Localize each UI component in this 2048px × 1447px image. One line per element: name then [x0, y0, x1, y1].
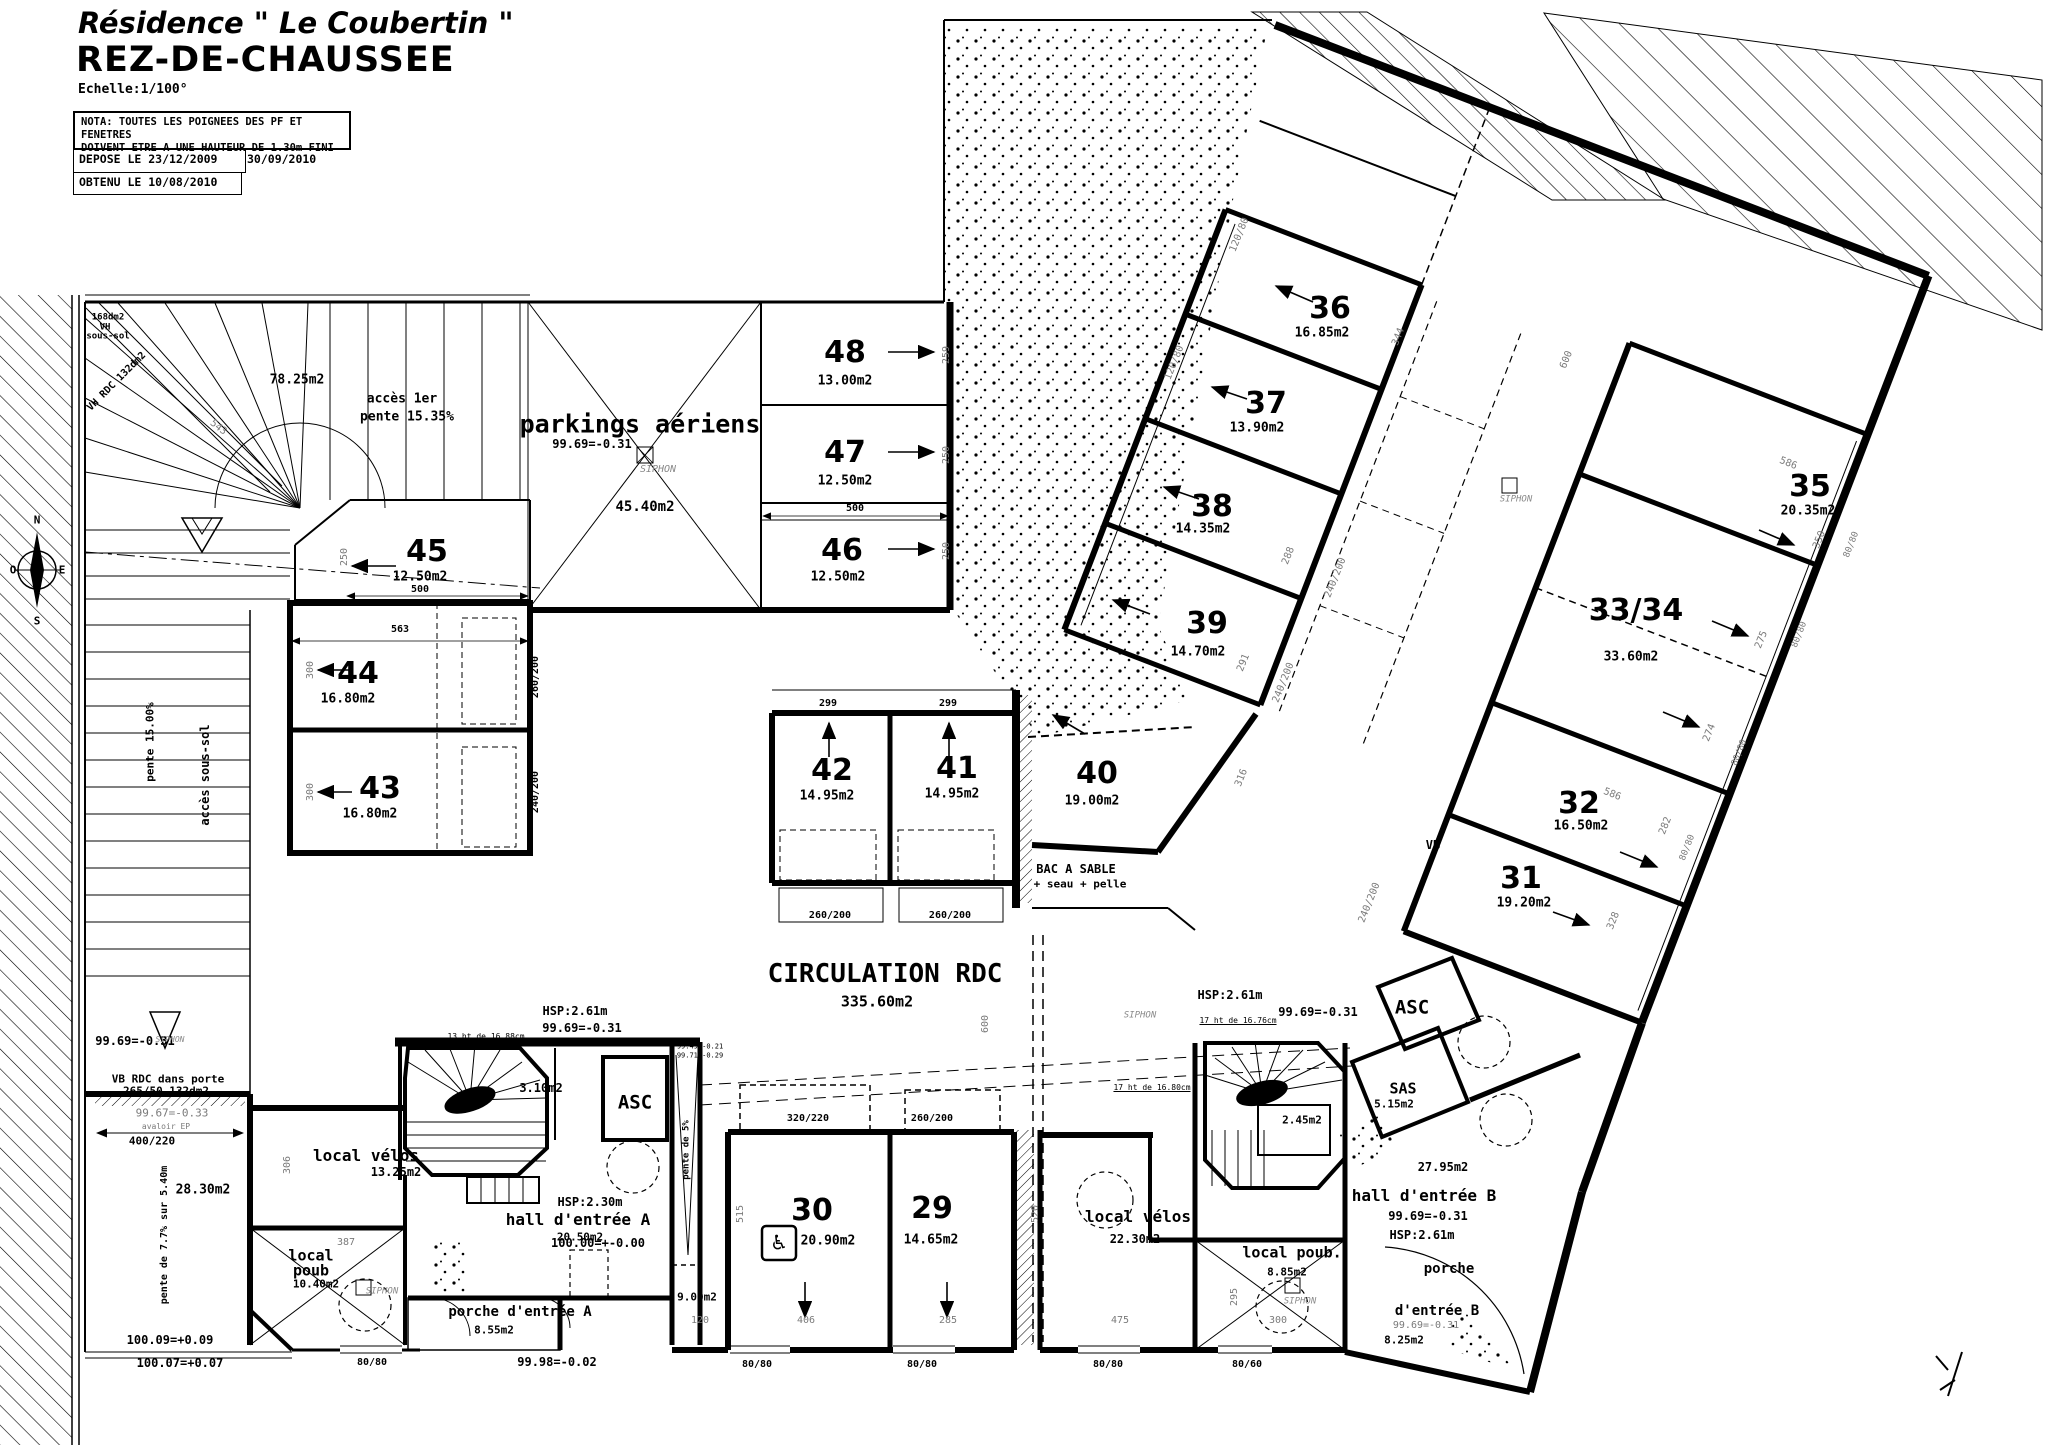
label-porche-a: porche d'entrée A: [448, 1305, 591, 1319]
label-hall-a: hall d'entrée A: [506, 1212, 651, 1228]
compass-east: E: [59, 564, 66, 577]
annotation: 300: [306, 783, 316, 801]
annotation: 240/200: [531, 771, 541, 813]
stipple-patch-a: [430, 1238, 466, 1300]
compass-west: O: [10, 564, 17, 577]
tree-icon: [1936, 1352, 1962, 1396]
room-area-44: 16.80m2: [321, 693, 376, 706]
annotation: 320/220: [787, 1114, 829, 1124]
room-area-40: 19.00m2: [1065, 795, 1120, 808]
obtenu-date-box: OBTENU LE 10/08/2010: [73, 172, 242, 195]
annotation: 295: [1230, 1288, 1240, 1306]
second-date: 30/09/2010: [247, 152, 316, 166]
room-number-38: 38: [1191, 492, 1233, 522]
annotation: SIPHON: [640, 465, 676, 475]
annotation: pente de 7.7% sur 5.40m: [160, 1166, 170, 1304]
annotation: 250: [340, 548, 350, 566]
annotation: accès 1er: [367, 393, 437, 406]
room-number-36: 36: [1309, 294, 1351, 324]
room-area-43: 16.80m2: [343, 808, 398, 821]
room-area-41: 14.95m2: [925, 788, 980, 801]
annotation: 80/80: [742, 1360, 772, 1370]
annotation: 45.40m2: [615, 500, 674, 514]
annotation: 120: [691, 1316, 709, 1326]
annotation: 99.69=-0.31: [1393, 1321, 1459, 1331]
annotation: 285: [939, 1316, 957, 1326]
room-number-31: 31: [1500, 864, 1542, 894]
annotation: 17 ht de 16.76cm: [1199, 1017, 1276, 1025]
annotation: 168dm2: [92, 314, 125, 323]
annotation: 27.95m2: [1418, 1161, 1469, 1173]
annotation: 400/220: [129, 1136, 175, 1147]
annotation: SAS: [1389, 1082, 1416, 1097]
annotation: 13.25m2: [371, 1166, 422, 1178]
annotation: HSP:2.61m: [1197, 989, 1262, 1001]
room-number-39: 39: [1186, 609, 1228, 639]
annotation: 8.85m2: [1267, 1267, 1307, 1278]
room-area-42: 14.95m2: [800, 790, 855, 803]
annotation: 10.40m2: [293, 1279, 339, 1290]
annotation: 600: [981, 1015, 991, 1033]
label-hall-b: hall d'entrée B: [1352, 1188, 1497, 1204]
nota-line1: NOTA: TOUTES LES POIGNEES DES PF ET FENE…: [81, 116, 349, 142]
room-number-37: 37: [1245, 389, 1287, 419]
wheelchair-icon: ♿: [772, 1232, 786, 1255]
scale-label: Echelle:1/100°: [78, 82, 188, 97]
annotation: HSP:2.61m: [542, 1005, 607, 1017]
room-number-47: 47: [824, 438, 866, 468]
annotation: 8.25m2: [1384, 1335, 1424, 1346]
annotation: SIPHON: [156, 1036, 185, 1044]
annotation: 387: [337, 1238, 355, 1248]
annotation: 8.55m2: [474, 1325, 514, 1336]
page-title: Résidence " Le Coubertin ": [78, 6, 513, 40]
room-area-30: 20.90m2: [801, 1235, 856, 1248]
label-asc-b: ASC: [1395, 999, 1429, 1018]
annotation: 78.25m2: [270, 374, 325, 387]
annotation: 80/60: [1232, 1360, 1262, 1370]
annotation: 260/200: [809, 911, 851, 921]
annotation: 300: [1269, 1316, 1287, 1326]
annotation: avaloir EP: [142, 1123, 190, 1131]
room-number-29: 29: [911, 1194, 953, 1224]
annotation: 99.49=-0.21: [677, 1044, 723, 1051]
annotation: 299: [819, 699, 837, 709]
annotation: 100.00=+-0.00: [551, 1237, 645, 1249]
room-area-38: 14.35m2: [1176, 523, 1231, 536]
annotation: 99.69=-0.31: [552, 438, 631, 450]
room-area-37: 13.90m2: [1230, 422, 1285, 435]
annotation: 299: [939, 699, 957, 709]
annotation: 2.45m2: [1282, 1115, 1322, 1126]
annotation: 28.30m2: [176, 1184, 231, 1197]
annotation: 80/80: [357, 1358, 387, 1368]
annotation: d'entrée B: [1395, 1304, 1479, 1318]
annotation: VB RDC dans porte: [112, 1074, 225, 1085]
annotation: 250: [942, 446, 952, 464]
annotation: BAC A SABLE: [1036, 863, 1115, 875]
annotation: pente 15.00%: [145, 702, 156, 781]
depose-date-box: DEPOSE LE 23/12/2009: [73, 149, 246, 173]
annotation: 259: [942, 346, 952, 364]
annotation: 260/200: [929, 911, 971, 921]
annotation: HSP:2.61m: [1389, 1229, 1454, 1241]
room-number-42: 42: [811, 756, 853, 786]
annotation: 250: [942, 542, 952, 560]
room-area-29: 14.65m2: [904, 1234, 959, 1247]
annotation: 306: [283, 1156, 293, 1174]
compass-north: N: [34, 514, 41, 527]
annotation: 563: [391, 625, 409, 635]
annotation: 22.30m2: [1110, 1233, 1161, 1245]
compass-south: S: [34, 615, 41, 628]
annotation: 9.00m2: [677, 1292, 717, 1303]
room-number-40: 40: [1076, 759, 1118, 789]
annotation: 99.69=-0.31: [1388, 1210, 1467, 1222]
room-area-32: 16.50m2: [1554, 820, 1609, 833]
annotation: accès sous-sol: [199, 724, 211, 825]
label-local-poub-b: local poub.: [1242, 1246, 1341, 1261]
annotation: + seau + pelle: [1034, 879, 1127, 890]
annotation: 99.69=-0.31: [1278, 1006, 1357, 1018]
room-number-35: 35: [1789, 472, 1831, 502]
room-area-46: 12.50m2: [811, 571, 866, 584]
room-area-45: 12.50m2: [393, 571, 448, 584]
annotation: poub: [293, 1264, 329, 1279]
annotation: VB: [1426, 839, 1440, 851]
room-number-30: 30: [791, 1196, 833, 1226]
floor-subtitle: REZ-DE-CHAUSSEE: [76, 40, 455, 80]
annotation: 260/200: [531, 656, 541, 698]
room-number-48: 48: [824, 338, 866, 368]
annotation: 99.67=-0.33: [136, 1108, 209, 1119]
annotation: 100.09=+0.09: [127, 1334, 214, 1346]
annotation: 5.15m2: [1374, 1099, 1414, 1110]
room-area-35: 20.35m2: [1781, 505, 1836, 518]
plan-linework: [0, 0, 2048, 1447]
annotation: 515: [736, 1205, 746, 1223]
label-porche-b: porche: [1424, 1262, 1475, 1276]
room-area-47: 12.50m2: [818, 475, 873, 488]
annotation: 265/50 132dm2: [123, 1086, 209, 1097]
annotation: 100.07=+0.07: [137, 1357, 224, 1369]
annotation: 17 ht de 16.80cm: [1113, 1084, 1190, 1092]
annotation: 260/200: [911, 1114, 953, 1124]
room-number-33/34: 33/34: [1589, 596, 1683, 626]
nota-box: NOTA: TOUTES LES POIGNEES DES PF ET FENE…: [73, 111, 351, 150]
room-number-45: 45: [406, 537, 448, 567]
annotation: 99.98=-0.02: [517, 1356, 596, 1368]
label-local-velos-a: local vélos: [313, 1148, 419, 1164]
annotation: SIPHON: [1284, 1298, 1317, 1307]
label-local-velos-b: local vélos: [1085, 1209, 1191, 1225]
room-area-33/34: 33.60m2: [1604, 651, 1659, 664]
room-area-36: 16.85m2: [1295, 327, 1350, 340]
annotation: 3.10m2: [519, 1082, 562, 1094]
annotation: 406: [797, 1316, 815, 1326]
annotation: 475: [1111, 1316, 1129, 1326]
annotation: 300: [306, 661, 316, 679]
room-number-43: 43: [359, 774, 401, 804]
annotation: 500: [846, 504, 864, 514]
room-number-46: 46: [821, 536, 863, 566]
annotation: SIPHON: [1500, 496, 1533, 505]
annotation: 520: [1031, 1205, 1041, 1223]
annotation: 80/80: [1093, 1360, 1123, 1370]
room-area-39: 14.70m2: [1171, 646, 1226, 659]
room-number-41: 41: [936, 754, 978, 784]
annotation: 13 ht de 16.88cm: [447, 1033, 524, 1041]
floor-plan-canvas: Résidence " Le Coubertin " REZ-DE-CHAUSS…: [0, 0, 2048, 1447]
label-asc-a: ASC: [618, 1094, 652, 1113]
hatch-left-strip: [0, 295, 72, 1445]
label-circulation-rdc: CIRCULATION RDC: [768, 961, 1003, 987]
annotation: HSP:2.30m: [557, 1196, 622, 1208]
annotation: 80/80: [907, 1360, 937, 1370]
label-parkings-aeriens: parkings aériens: [520, 412, 761, 437]
annotation: 99.69=-0.31: [542, 1022, 621, 1034]
room-number-44: 44: [337, 659, 379, 689]
room-number-32: 32: [1558, 789, 1600, 819]
annotation: SIPHON: [1124, 1012, 1157, 1021]
annotation: 335.60m2: [841, 995, 913, 1010]
room-area-31: 19.20m2: [1497, 897, 1552, 910]
annotation: sous-sol: [86, 333, 129, 342]
room-area-48: 13.00m2: [818, 375, 873, 388]
annotation: 99.71=-0.29: [677, 1053, 723, 1060]
annotation: pente de 5%: [683, 1120, 692, 1180]
annotation: pente 15.35%: [360, 411, 454, 424]
annotation: SIPHON: [366, 1288, 399, 1297]
annotation: 500: [411, 585, 429, 595]
